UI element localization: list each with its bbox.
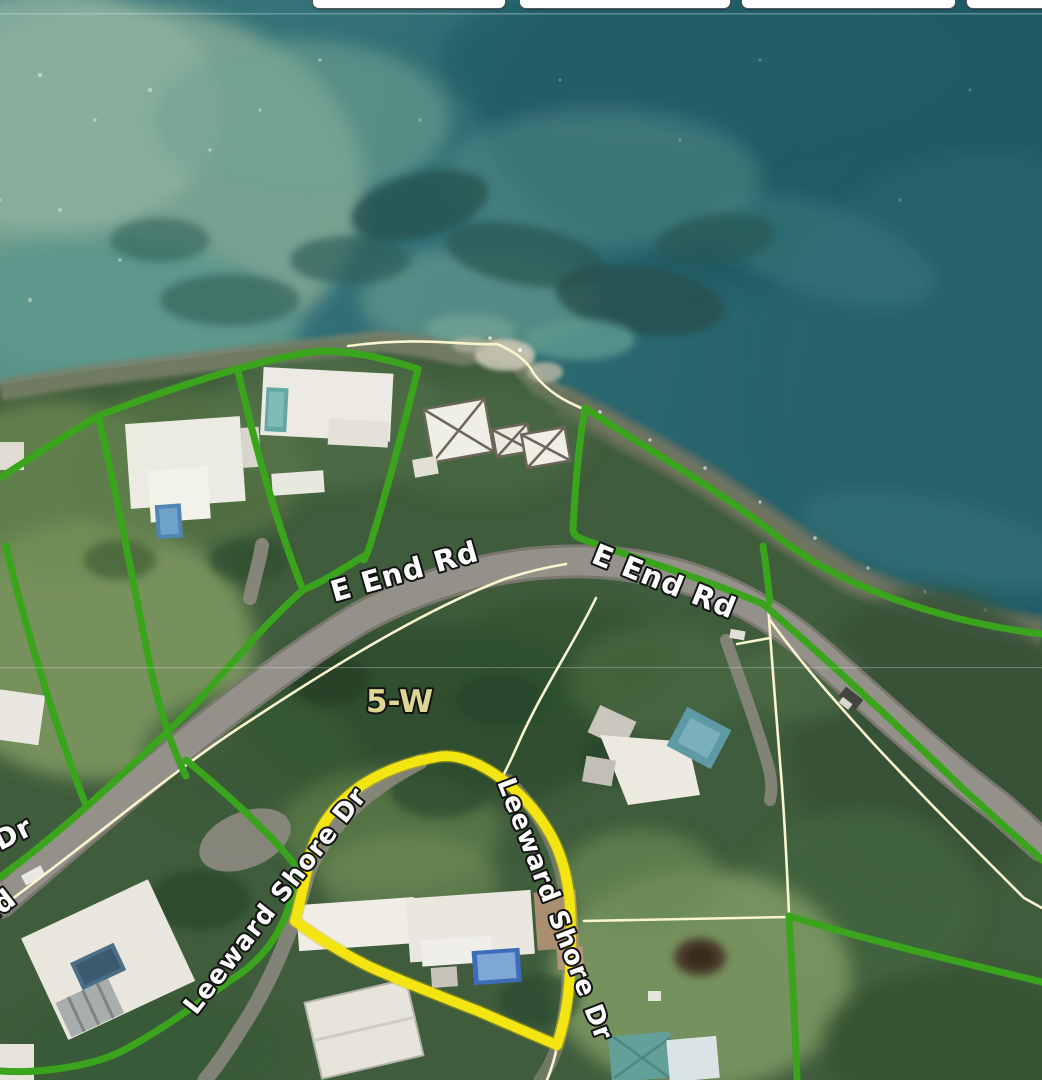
map-canvas[interactable]: E End Rd E End Rd 5-W Leeward Shore Dr L…: [0, 0, 1042, 1080]
toolbar-button-3[interactable]: [741, 0, 956, 9]
toolbar-button-2[interactable]: [519, 0, 731, 9]
tile-seam-top: [0, 13, 1042, 15]
tile-seam-mid: [0, 667, 1042, 668]
parcel-number-label: 5-W: [366, 684, 433, 720]
house-b: [260, 367, 394, 448]
toolbar-button-4[interactable]: [966, 0, 1042, 9]
toolbar-button-1[interactable]: [312, 0, 506, 9]
house-h: [608, 1031, 720, 1080]
car-meadow: [648, 991, 661, 1001]
